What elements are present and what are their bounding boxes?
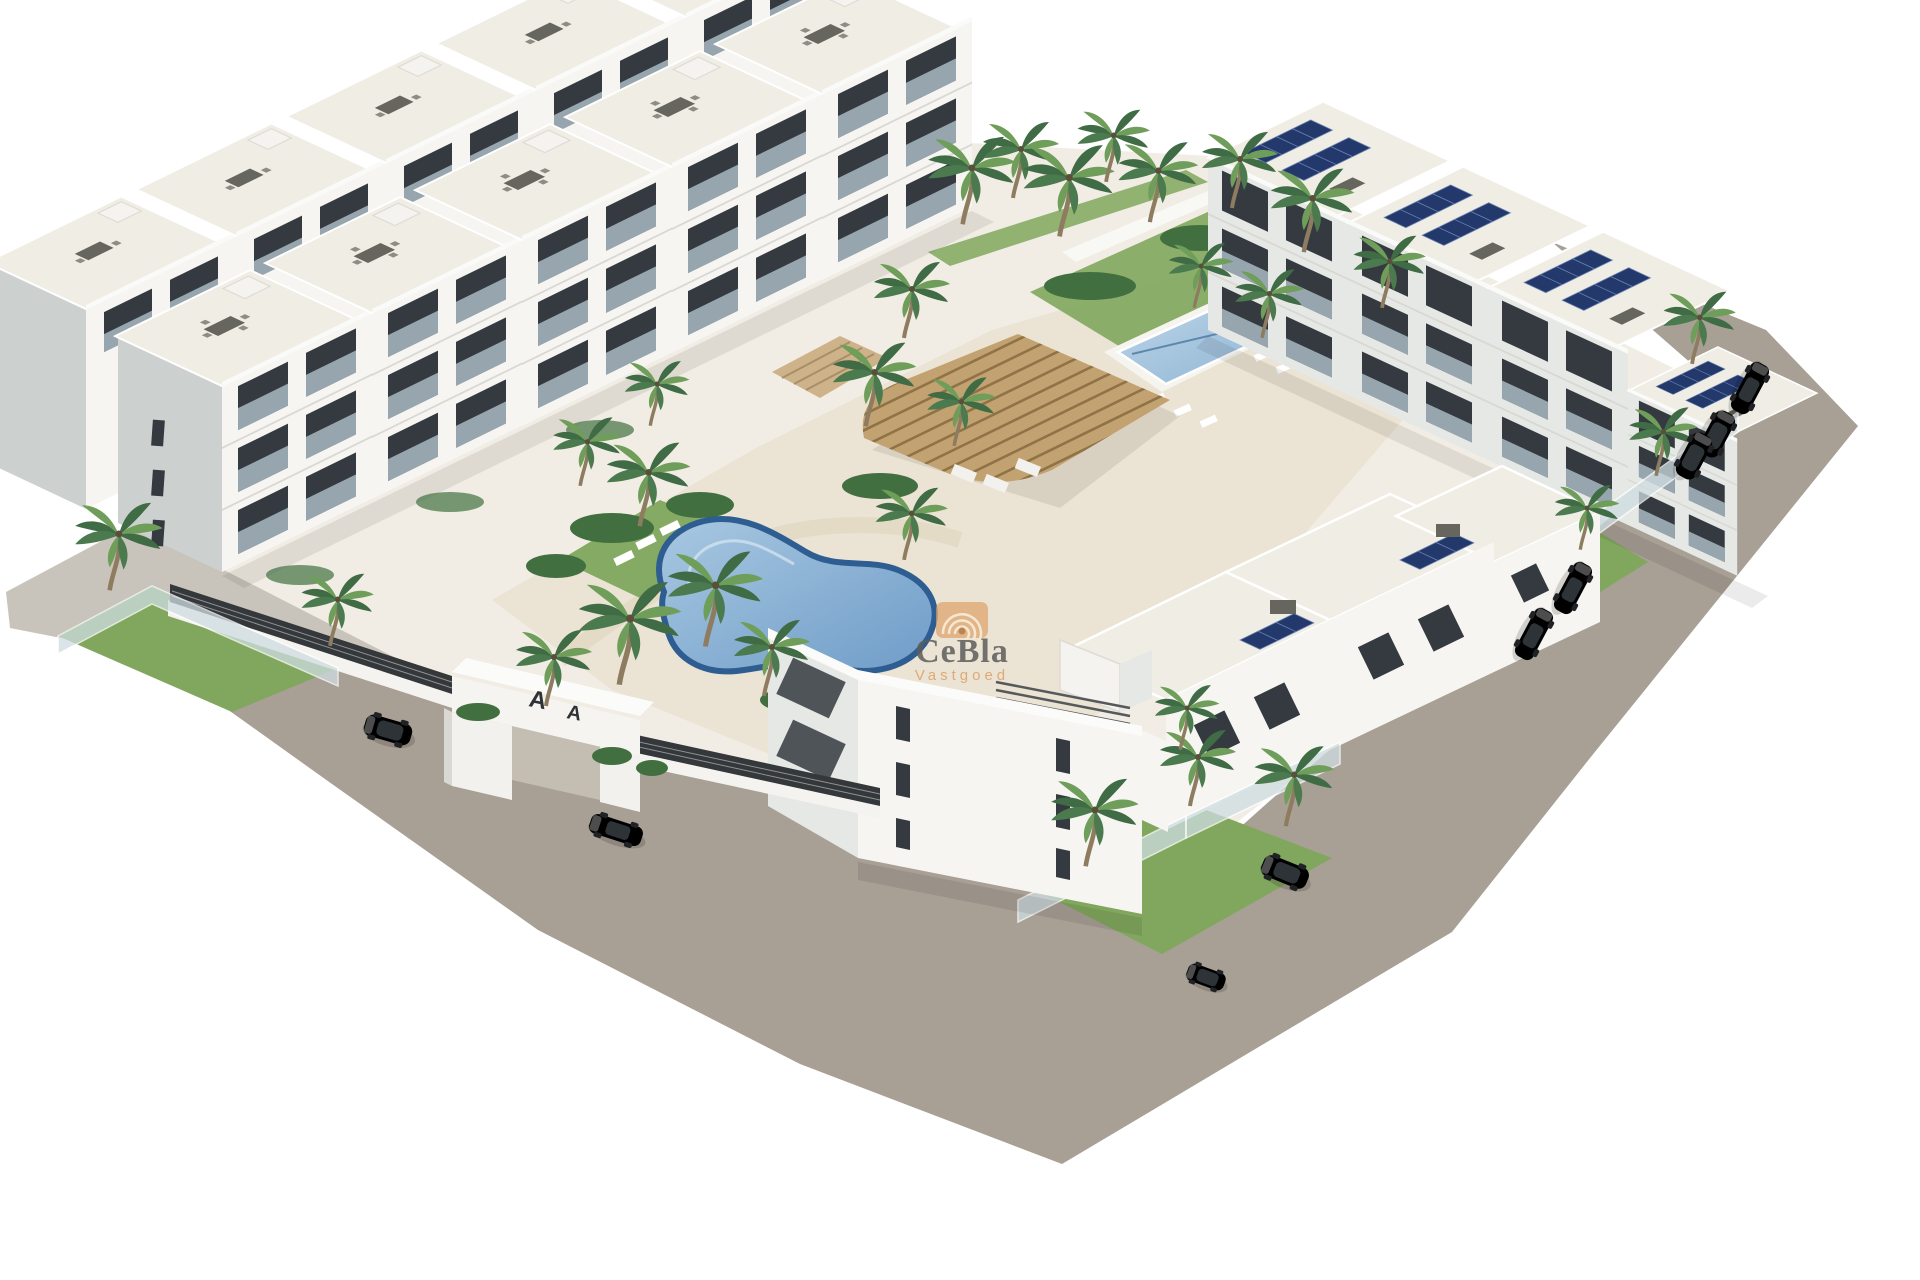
watermark-tagline: Vastgoed bbox=[915, 667, 1009, 684]
complex-render: A A bbox=[0, 0, 1920, 1280]
gate-pillar-left bbox=[452, 712, 512, 800]
render-canvas: A A bbox=[0, 0, 1920, 1280]
watermark-brand: CeBla bbox=[915, 633, 1009, 670]
